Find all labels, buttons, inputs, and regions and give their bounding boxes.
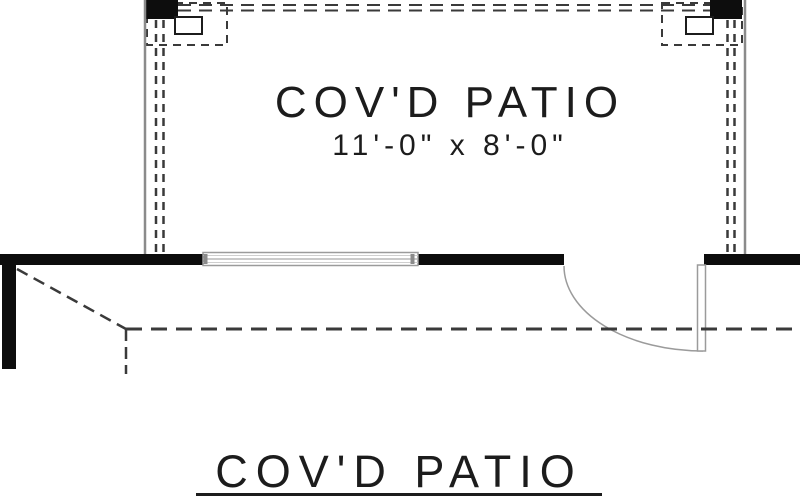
house-wall-left-segment [0,254,203,265]
patio-right-edge-dashed [728,20,735,253]
patio-slab-dashed-outline [17,269,800,374]
house-wall-right-segment [704,254,800,265]
patio-post-right [710,0,742,19]
patio-post-left [146,0,178,19]
floor-plan-canvas: COV'D PATIO 11'-0" x 8'-0" COV'D PATIO [0,0,800,500]
post-anchor-right [686,17,713,34]
drawing-title: COV'D PATIO [215,446,582,498]
post-anchor-left [175,17,202,34]
drawing-title-underline [196,493,602,496]
floor-plan-linework [0,0,800,500]
window-icon [203,253,418,266]
patio-left-edge-dashed [156,20,164,253]
patio-top-edge-dashed [178,5,712,11]
house-wall-left-return [2,254,16,369]
room-label: COV'D PATIO [275,78,625,128]
door-icon [564,265,706,351]
house-wall-middle-segment [418,254,564,265]
room-dimensions: 11'-0" x 8'-0" [332,129,568,163]
